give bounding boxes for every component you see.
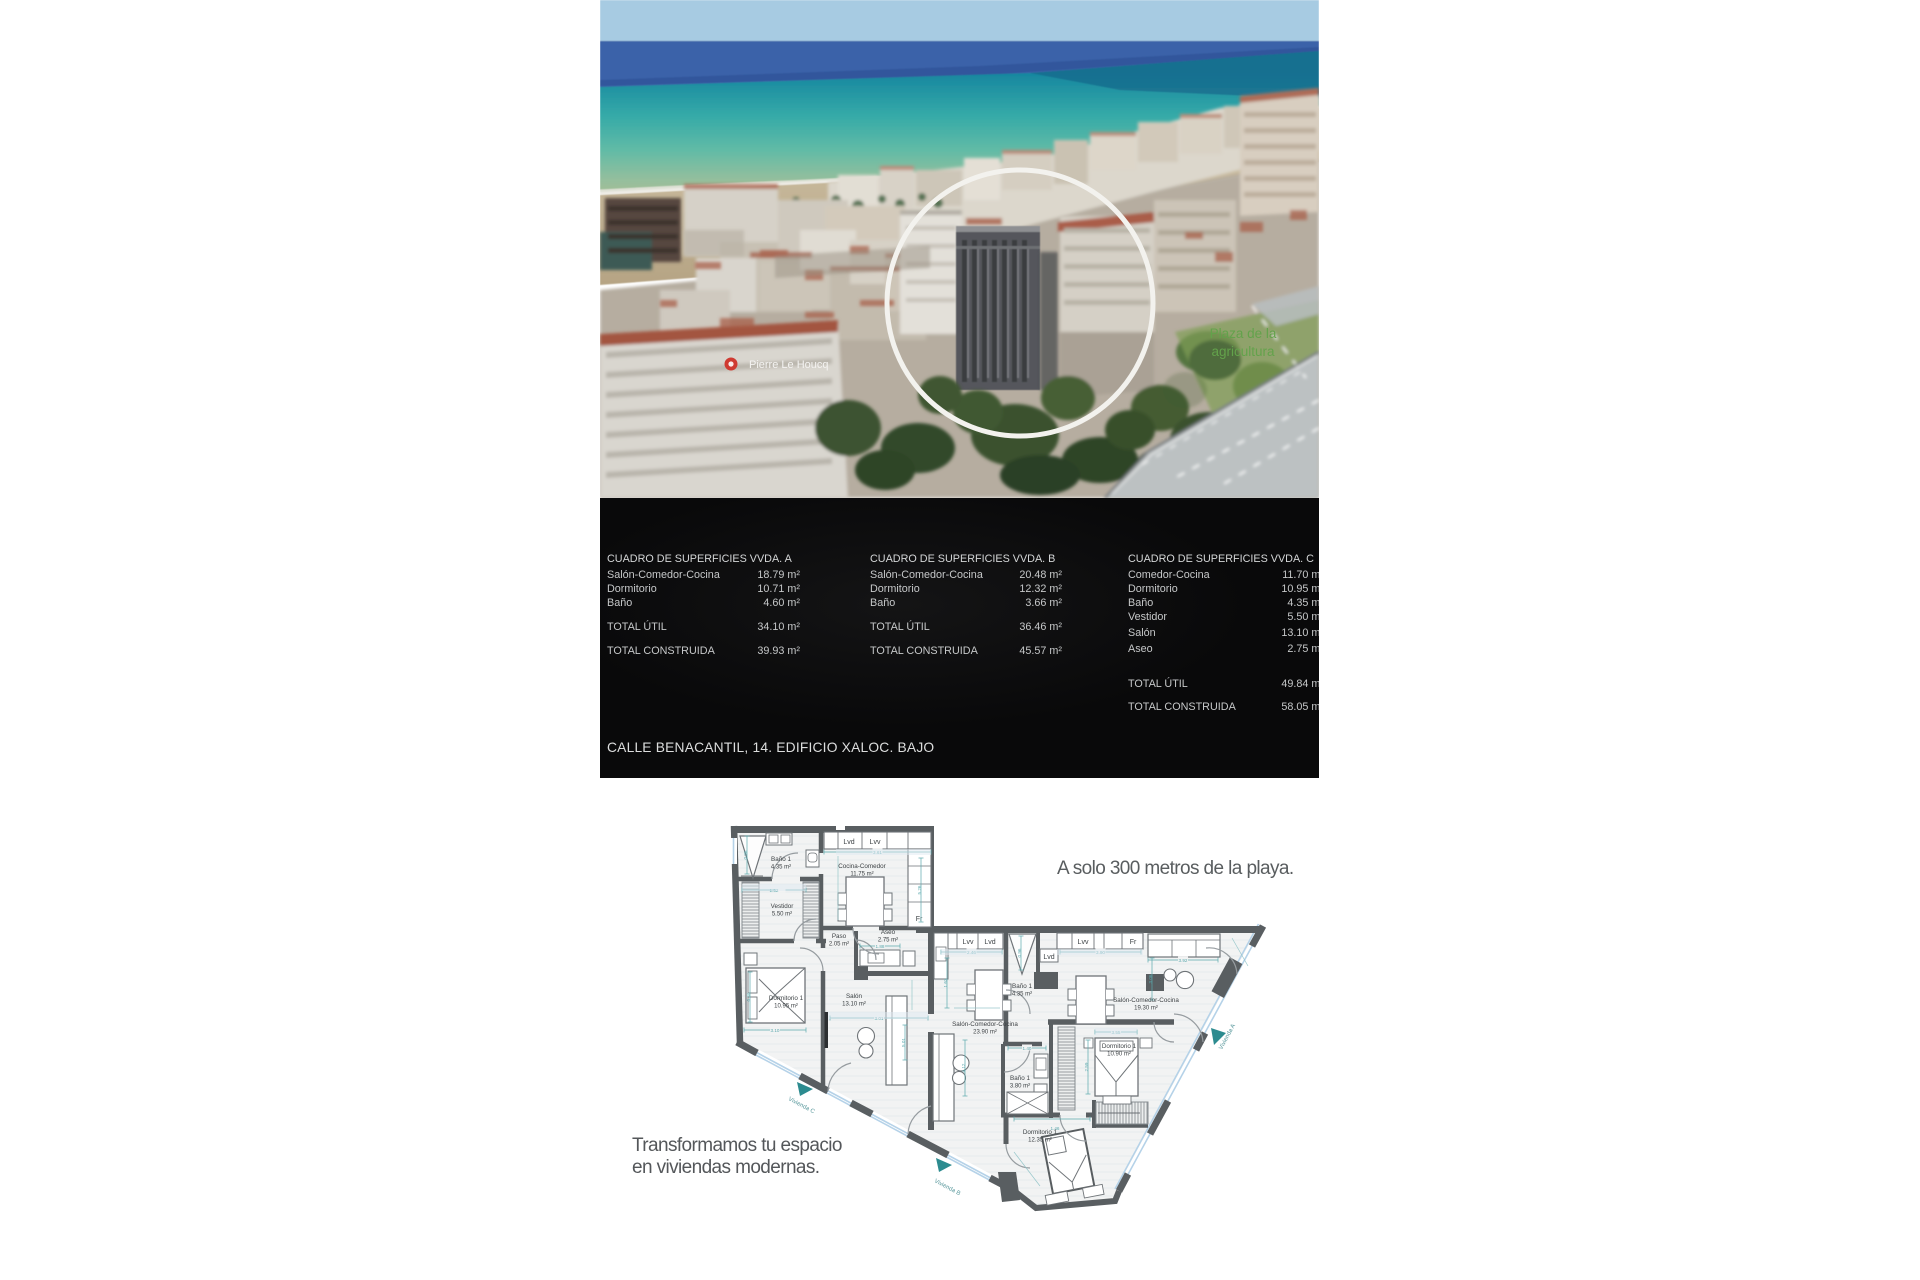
- svg-text:Dormitorio 1: Dormitorio 1: [1023, 1129, 1058, 1136]
- svg-text:11.75 m²: 11.75 m²: [850, 872, 873, 878]
- svg-text:3.92: 3.92: [1179, 958, 1188, 963]
- svg-text:Paso: Paso: [832, 933, 847, 940]
- svg-text:10.95 m²: 10.95 m²: [774, 1004, 798, 1010]
- svg-text:10.90 m²: 10.90 m²: [1107, 1052, 1131, 1058]
- svg-text:4.35 m²: 4.35 m²: [771, 865, 791, 871]
- svg-text:Cocina-Comedor: Cocina-Comedor: [838, 863, 886, 870]
- svg-text:Lvv: Lvv: [870, 839, 881, 846]
- svg-text:1.88: 1.88: [876, 944, 885, 949]
- svg-text:13.10 m²: 13.10 m²: [842, 1002, 866, 1008]
- svg-text:Lvd: Lvd: [843, 839, 854, 846]
- svg-text:2.05 m²: 2.05 m²: [829, 942, 849, 948]
- svg-text:5.01: 5.01: [901, 1038, 906, 1047]
- svg-text:Salón: Salón: [846, 993, 863, 1000]
- svg-text:Baño 1: Baño 1: [1010, 1075, 1030, 1082]
- svg-text:3.80 m²: 3.80 m²: [1010, 1084, 1030, 1090]
- svg-text:Vivienda B: Vivienda B: [933, 1178, 961, 1197]
- svg-text:0.96: 0.96: [1017, 948, 1022, 957]
- svg-text:Aseo: Aseo: [881, 929, 896, 936]
- svg-text:3.10: 3.10: [771, 1028, 780, 1033]
- svg-text:Lvd: Lvd: [984, 939, 995, 946]
- svg-text:Salón-Comedor-Cocina: Salón-Comedor-Cocina: [952, 1021, 1018, 1028]
- svg-text:Vivienda C: Vivienda C: [787, 1096, 816, 1115]
- svg-text:0.30: 0.30: [746, 992, 751, 1001]
- svg-text:Lvd: Lvd: [1043, 954, 1054, 961]
- svg-text:Fr: Fr: [1130, 939, 1137, 946]
- svg-text:19.30 m²: 19.30 m²: [1134, 1006, 1158, 1012]
- svg-text:agricultura: agricultura: [1211, 344, 1275, 359]
- svg-text:0.96: 0.96: [743, 850, 748, 859]
- svg-text:4.35 m²: 4.35 m²: [1012, 992, 1032, 998]
- svg-text:1.40: 1.40: [1023, 1046, 1032, 1051]
- svg-text:3.06: 3.06: [1148, 974, 1153, 983]
- svg-text:12.35 m²: 12.35 m²: [1028, 1138, 1052, 1144]
- svg-text:2.59: 2.59: [1084, 1062, 1089, 1071]
- svg-text:5.50 m²: 5.50 m²: [772, 912, 792, 918]
- svg-text:1.63: 1.63: [943, 978, 948, 987]
- svg-text:4.12: 4.12: [961, 1063, 966, 1072]
- svg-text:Vestidor: Vestidor: [771, 903, 794, 910]
- svg-text:23.90 m²: 23.90 m²: [973, 1030, 997, 1036]
- svg-text:Baño 1: Baño 1: [1012, 983, 1032, 990]
- svg-text:Dormitorio 1: Dormitorio 1: [769, 995, 804, 1002]
- svg-text:2.75 m²: 2.75 m²: [878, 938, 898, 944]
- svg-text:Dormitorio 1: Dormitorio 1: [1102, 1043, 1137, 1050]
- svg-text:Pierre Le Houcq: Pierre Le Houcq: [749, 359, 829, 371]
- svg-text:Salón-Comedor-Cocina: Salón-Comedor-Cocina: [1113, 997, 1179, 1004]
- svg-text:Baño 1: Baño 1: [771, 856, 791, 863]
- svg-text:5.26: 5.26: [917, 885, 922, 894]
- svg-text:Lvv: Lvv: [1078, 939, 1089, 946]
- svg-text:Lvv: Lvv: [963, 939, 974, 946]
- svg-text:Plaza de la: Plaza de la: [1210, 326, 1277, 341]
